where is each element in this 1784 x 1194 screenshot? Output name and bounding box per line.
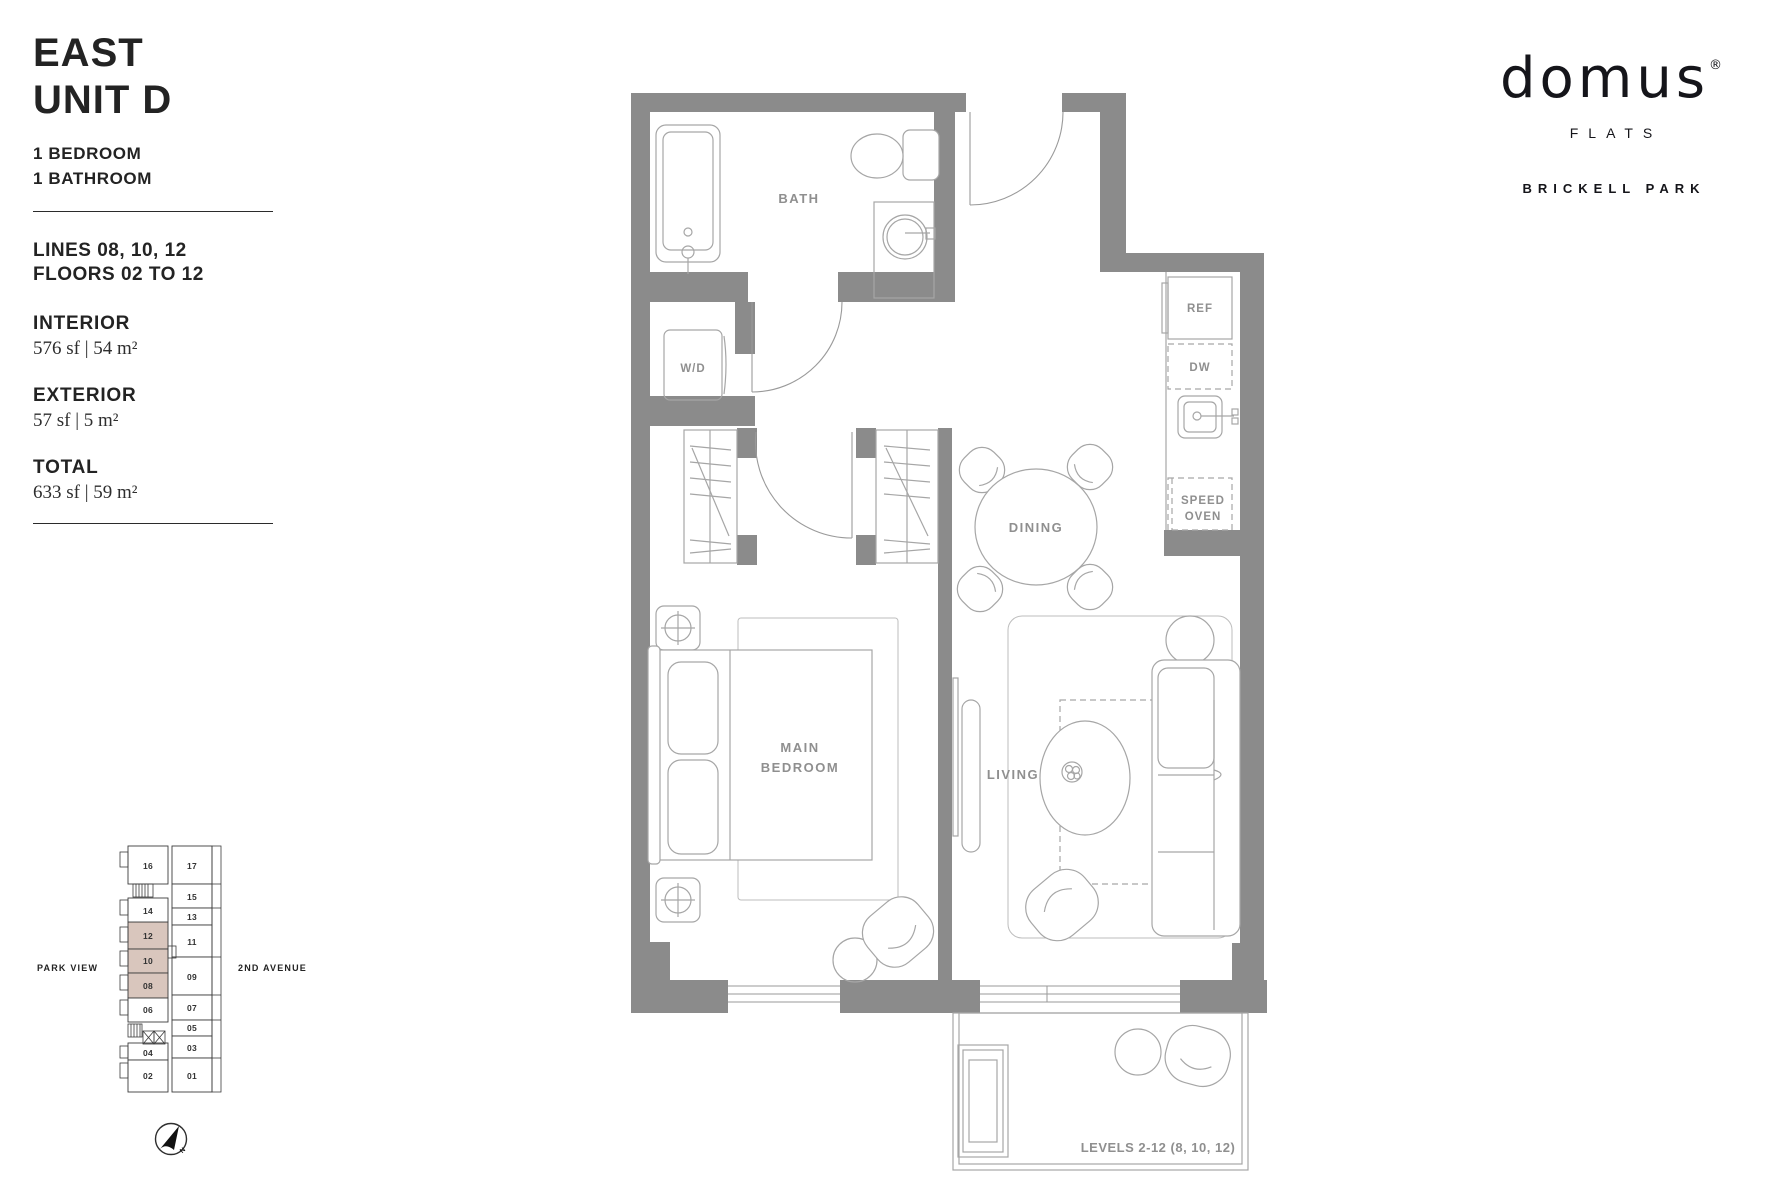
bedroom-armchair (853, 888, 942, 976)
compass-n: N (179, 1146, 187, 1154)
unit-08: 08 (143, 981, 153, 991)
sofa-side-table (1166, 616, 1214, 664)
bathroom-count: 1 BATHROOM (33, 169, 152, 189)
unit-03: 03 (187, 1043, 197, 1053)
project-name: BRICKELL PARK (1451, 181, 1771, 196)
nightstand-top (656, 606, 700, 650)
street-label-2nd-avenue: 2ND AVENUE (238, 963, 307, 973)
closet-left (684, 430, 737, 563)
living-armchair (1016, 860, 1108, 951)
lines-info: LINES 08, 10, 12 (33, 240, 187, 262)
brand-wordmark: domus® (1451, 36, 1771, 109)
key-plan: 16 17 14 15 13 12 11 10 09 08 06 07 05 0… (95, 840, 315, 1170)
speed-oven-label-2: OVEN (1185, 511, 1222, 523)
compass-icon: N (156, 1124, 188, 1155)
planter (958, 1045, 1008, 1157)
unit-12: 12 (143, 931, 153, 941)
unit-17: 17 (187, 861, 197, 871)
balcony-chair (1159, 1020, 1236, 1093)
brand-sub: FLATS (1451, 125, 1771, 141)
balcony-table (1115, 1029, 1161, 1075)
toilet (851, 130, 939, 180)
unit-02: 02 (143, 1071, 153, 1081)
unit-14: 14 (143, 906, 153, 916)
wd-label: W/D (680, 363, 705, 375)
ref-label: REF (1187, 303, 1213, 315)
registered-mark: ® (1709, 58, 1722, 73)
unit-16: 16 (143, 861, 153, 871)
total-label: TOTAL (33, 457, 99, 479)
sofa (1152, 660, 1240, 936)
exterior-value: 57 sf | 5 m² (33, 410, 119, 432)
interior-label: INTERIOR (33, 313, 130, 335)
levels-note: LEVELS 2-12 (8, 10, 12) (1081, 1140, 1236, 1155)
divider-bottom (33, 523, 273, 524)
unit-06: 06 (143, 1005, 153, 1015)
bath-label: BATH (778, 191, 819, 206)
title-line-2: UNIT D (33, 77, 172, 124)
brand-logo: domus® FLATS BRICKELL PARK (1451, 36, 1771, 196)
divider-top (33, 211, 273, 212)
main-bedroom-label-2: BEDROOM (761, 760, 839, 775)
unit-09: 09 (187, 972, 197, 982)
total-value: 633 sf | 59 m² (33, 482, 138, 504)
kitchen-sink (1178, 396, 1238, 438)
title-line-1: EAST (33, 30, 172, 77)
interior-value: 576 sf | 54 m² (33, 338, 138, 360)
main-bedroom-label-1: MAIN (780, 740, 819, 755)
dw-label: DW (1189, 362, 1210, 374)
brand-name: domus (1500, 46, 1709, 111)
bed (648, 646, 872, 864)
bath-door (752, 302, 842, 392)
street-label-park-view: PARK VIEW (37, 963, 98, 973)
bedroom-door (755, 432, 852, 538)
unit-07: 07 (187, 1003, 197, 1013)
tv (953, 678, 958, 836)
living-label: LIVING (987, 767, 1039, 782)
unit-10: 10 (143, 956, 153, 966)
dining-label: DINING (1009, 520, 1064, 535)
unit-13: 13 (187, 912, 197, 922)
floor-plan: BATH W/D REF DW (590, 60, 1290, 1180)
nightstand-bottom (656, 878, 700, 922)
elevator-icon (143, 1031, 165, 1044)
bathtub (656, 125, 720, 274)
media-console (962, 700, 980, 852)
unit-11: 11 (187, 937, 197, 947)
unit-04: 04 (143, 1048, 153, 1058)
entry-door (970, 112, 1063, 205)
unit-01: 01 (187, 1071, 197, 1081)
coffee-table (1040, 721, 1130, 835)
page-title: EAST UNIT D (33, 30, 172, 124)
speed-oven-label-1: SPEED (1181, 495, 1225, 507)
floors-info: FLOORS 02 TO 12 (33, 264, 204, 286)
unit-15: 15 (187, 892, 197, 902)
closet-right (876, 430, 938, 563)
unit-05: 05 (187, 1023, 197, 1033)
exterior-label: EXTERIOR (33, 385, 137, 407)
bedroom-count: 1 BEDROOM (33, 144, 141, 164)
